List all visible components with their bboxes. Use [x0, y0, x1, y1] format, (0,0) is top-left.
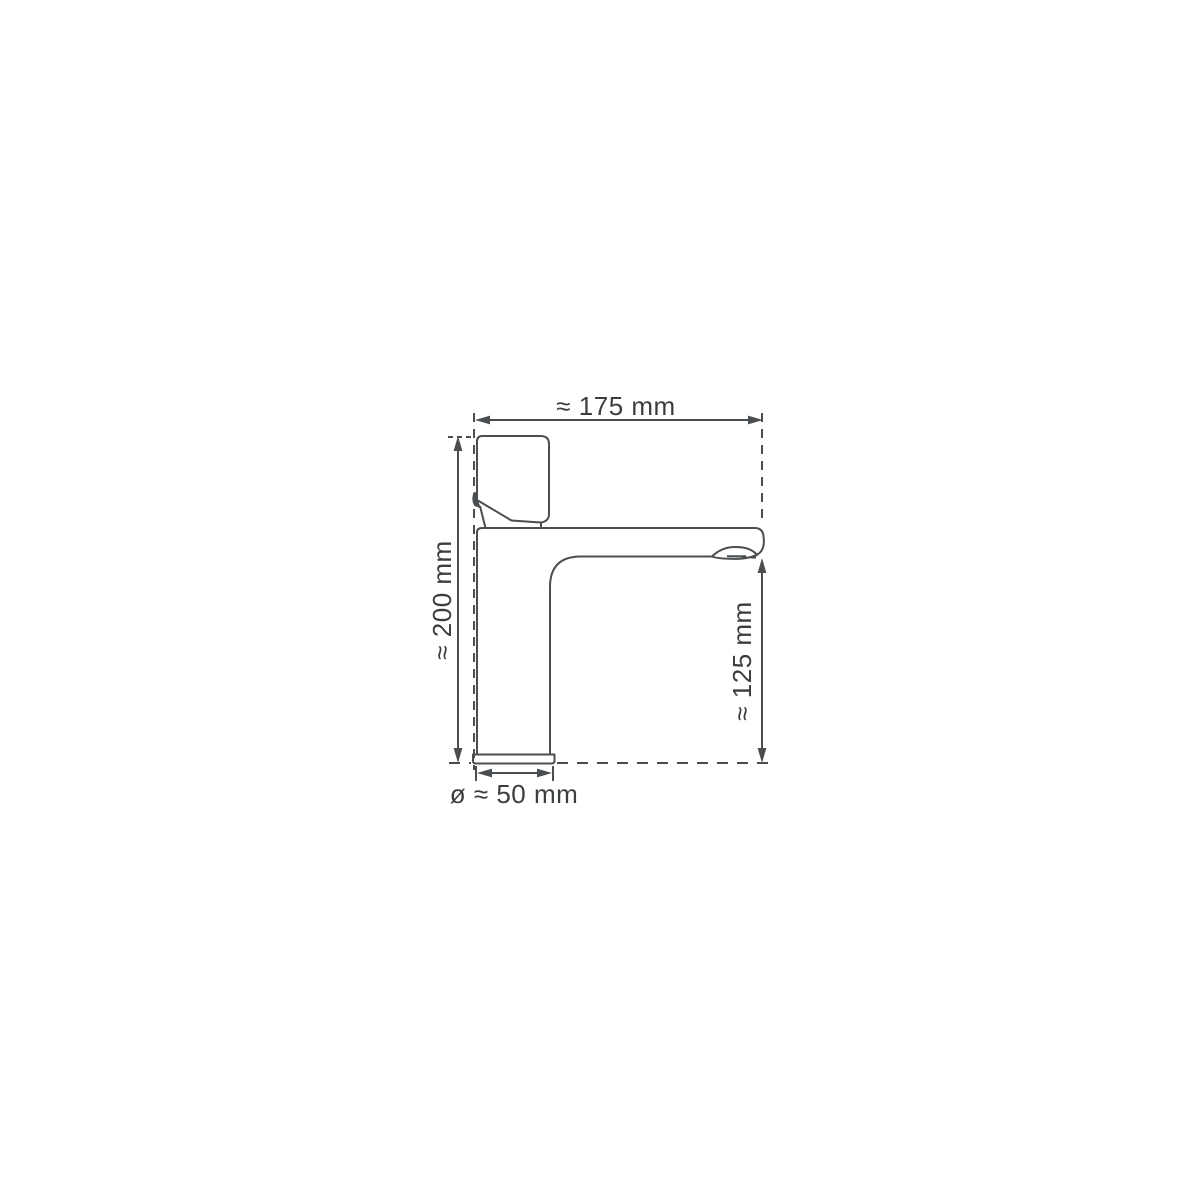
faucet-base-flange [473, 755, 555, 764]
width-arrow-left [475, 416, 490, 425]
height-dimension-label: ≈ 200 mm [427, 540, 457, 659]
spout-height-arrow-bottom [758, 748, 767, 763]
spout-height-arrow-top [758, 558, 767, 573]
faucet-outline [472, 436, 764, 764]
height-dimension: ≈ 200 mm [427, 436, 472, 763]
base-diameter-arrow-left [477, 769, 492, 778]
faucet-handle [477, 436, 549, 523]
base-diameter-dimension: ø ≈ 50 mm [450, 766, 579, 809]
height-arrow-bottom [454, 748, 463, 763]
faucet-body [477, 528, 764, 754]
width-dimension: ≈ 175 mm [475, 391, 763, 424]
base-diameter-dimension-label: ø ≈ 50 mm [450, 779, 579, 809]
base-diameter-arrow-right [537, 769, 552, 778]
width-dimension-label: ≈ 175 mm [556, 391, 675, 421]
faucet-dimension-diagram: ≈ 175 mm ≈ 200 mm ≈ 125 mm [0, 0, 1200, 1200]
spout-height-dimension: ≈ 125 mm [727, 558, 766, 764]
height-arrow-top [454, 436, 463, 451]
technical-drawing-canvas: ≈ 175 mm ≈ 200 mm ≈ 125 mm [0, 0, 1200, 1200]
faucet-spout-underside [550, 557, 712, 755]
dimension-annotations: ≈ 175 mm ≈ 200 mm ≈ 125 mm [427, 391, 770, 809]
handle-stem-left [480, 506, 486, 528]
width-arrow-right [748, 416, 763, 425]
spout-height-dimension-label: ≈ 125 mm [727, 601, 757, 720]
